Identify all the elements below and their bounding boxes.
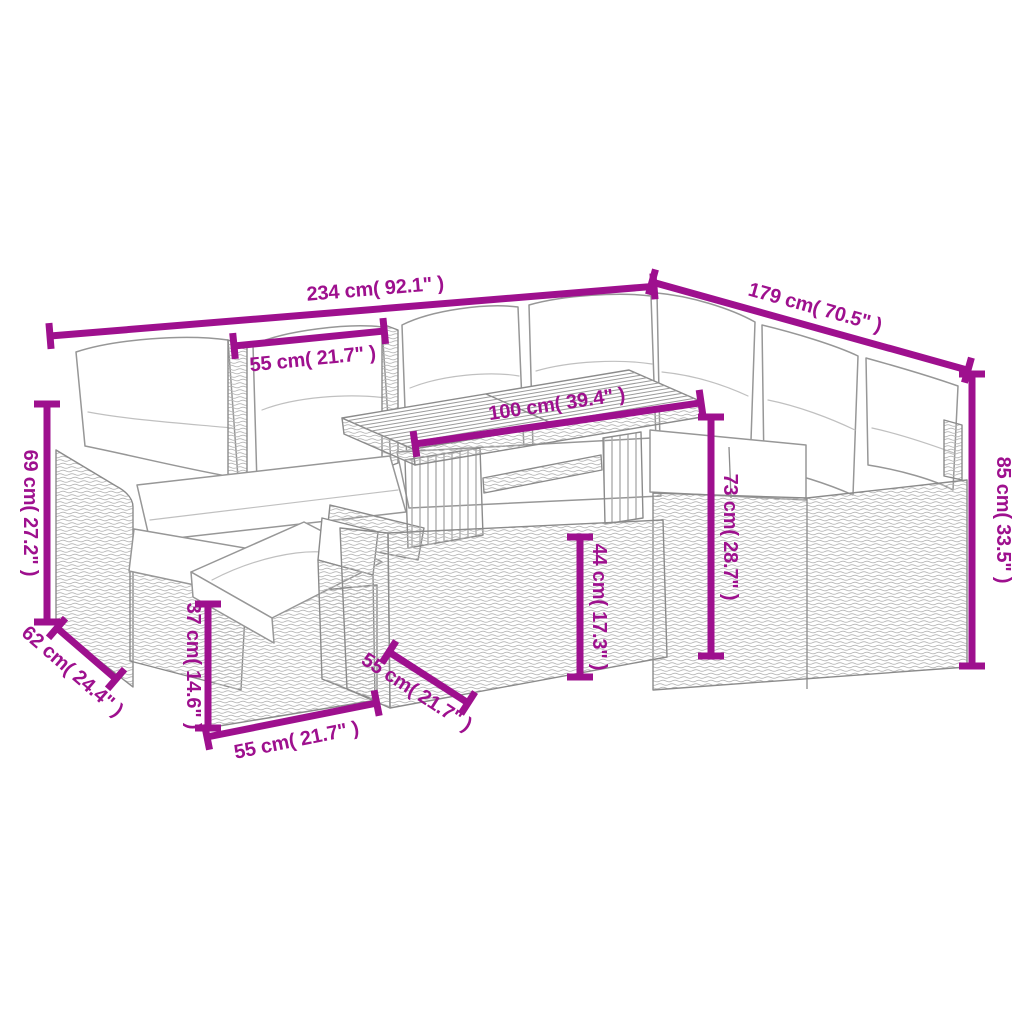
left-armrest bbox=[56, 450, 133, 687]
dimension-label: 85 cm( 33.5" ) bbox=[992, 457, 1014, 584]
dimension-label: 37 cm( 14.6" ) bbox=[182, 603, 204, 730]
dimension-left-side-height: 69 cm( 27.2" ) bbox=[19, 404, 60, 622]
dimension-diagram: 234 cm( 92.1" ) 179 cm( 70.5" ) 55 cm( 2… bbox=[0, 0, 1024, 1024]
back-post bbox=[228, 340, 247, 482]
dimension-label: 234 cm( 92.1" ) bbox=[306, 273, 445, 306]
dimension-label: 44 cm( 17.3" ) bbox=[588, 544, 610, 671]
table-riser bbox=[603, 432, 643, 524]
dimension-label: 69 cm( 27.2" ) bbox=[19, 450, 41, 577]
dimension-label: 73 cm( 28.7" ) bbox=[719, 474, 741, 601]
dimension-label: 55 cm( 21.7" ) bbox=[232, 717, 361, 763]
product-dimension-image: 234 cm( 92.1" ) 179 cm( 70.5" ) 55 cm( 2… bbox=[0, 0, 1024, 1024]
back-post bbox=[944, 420, 962, 480]
